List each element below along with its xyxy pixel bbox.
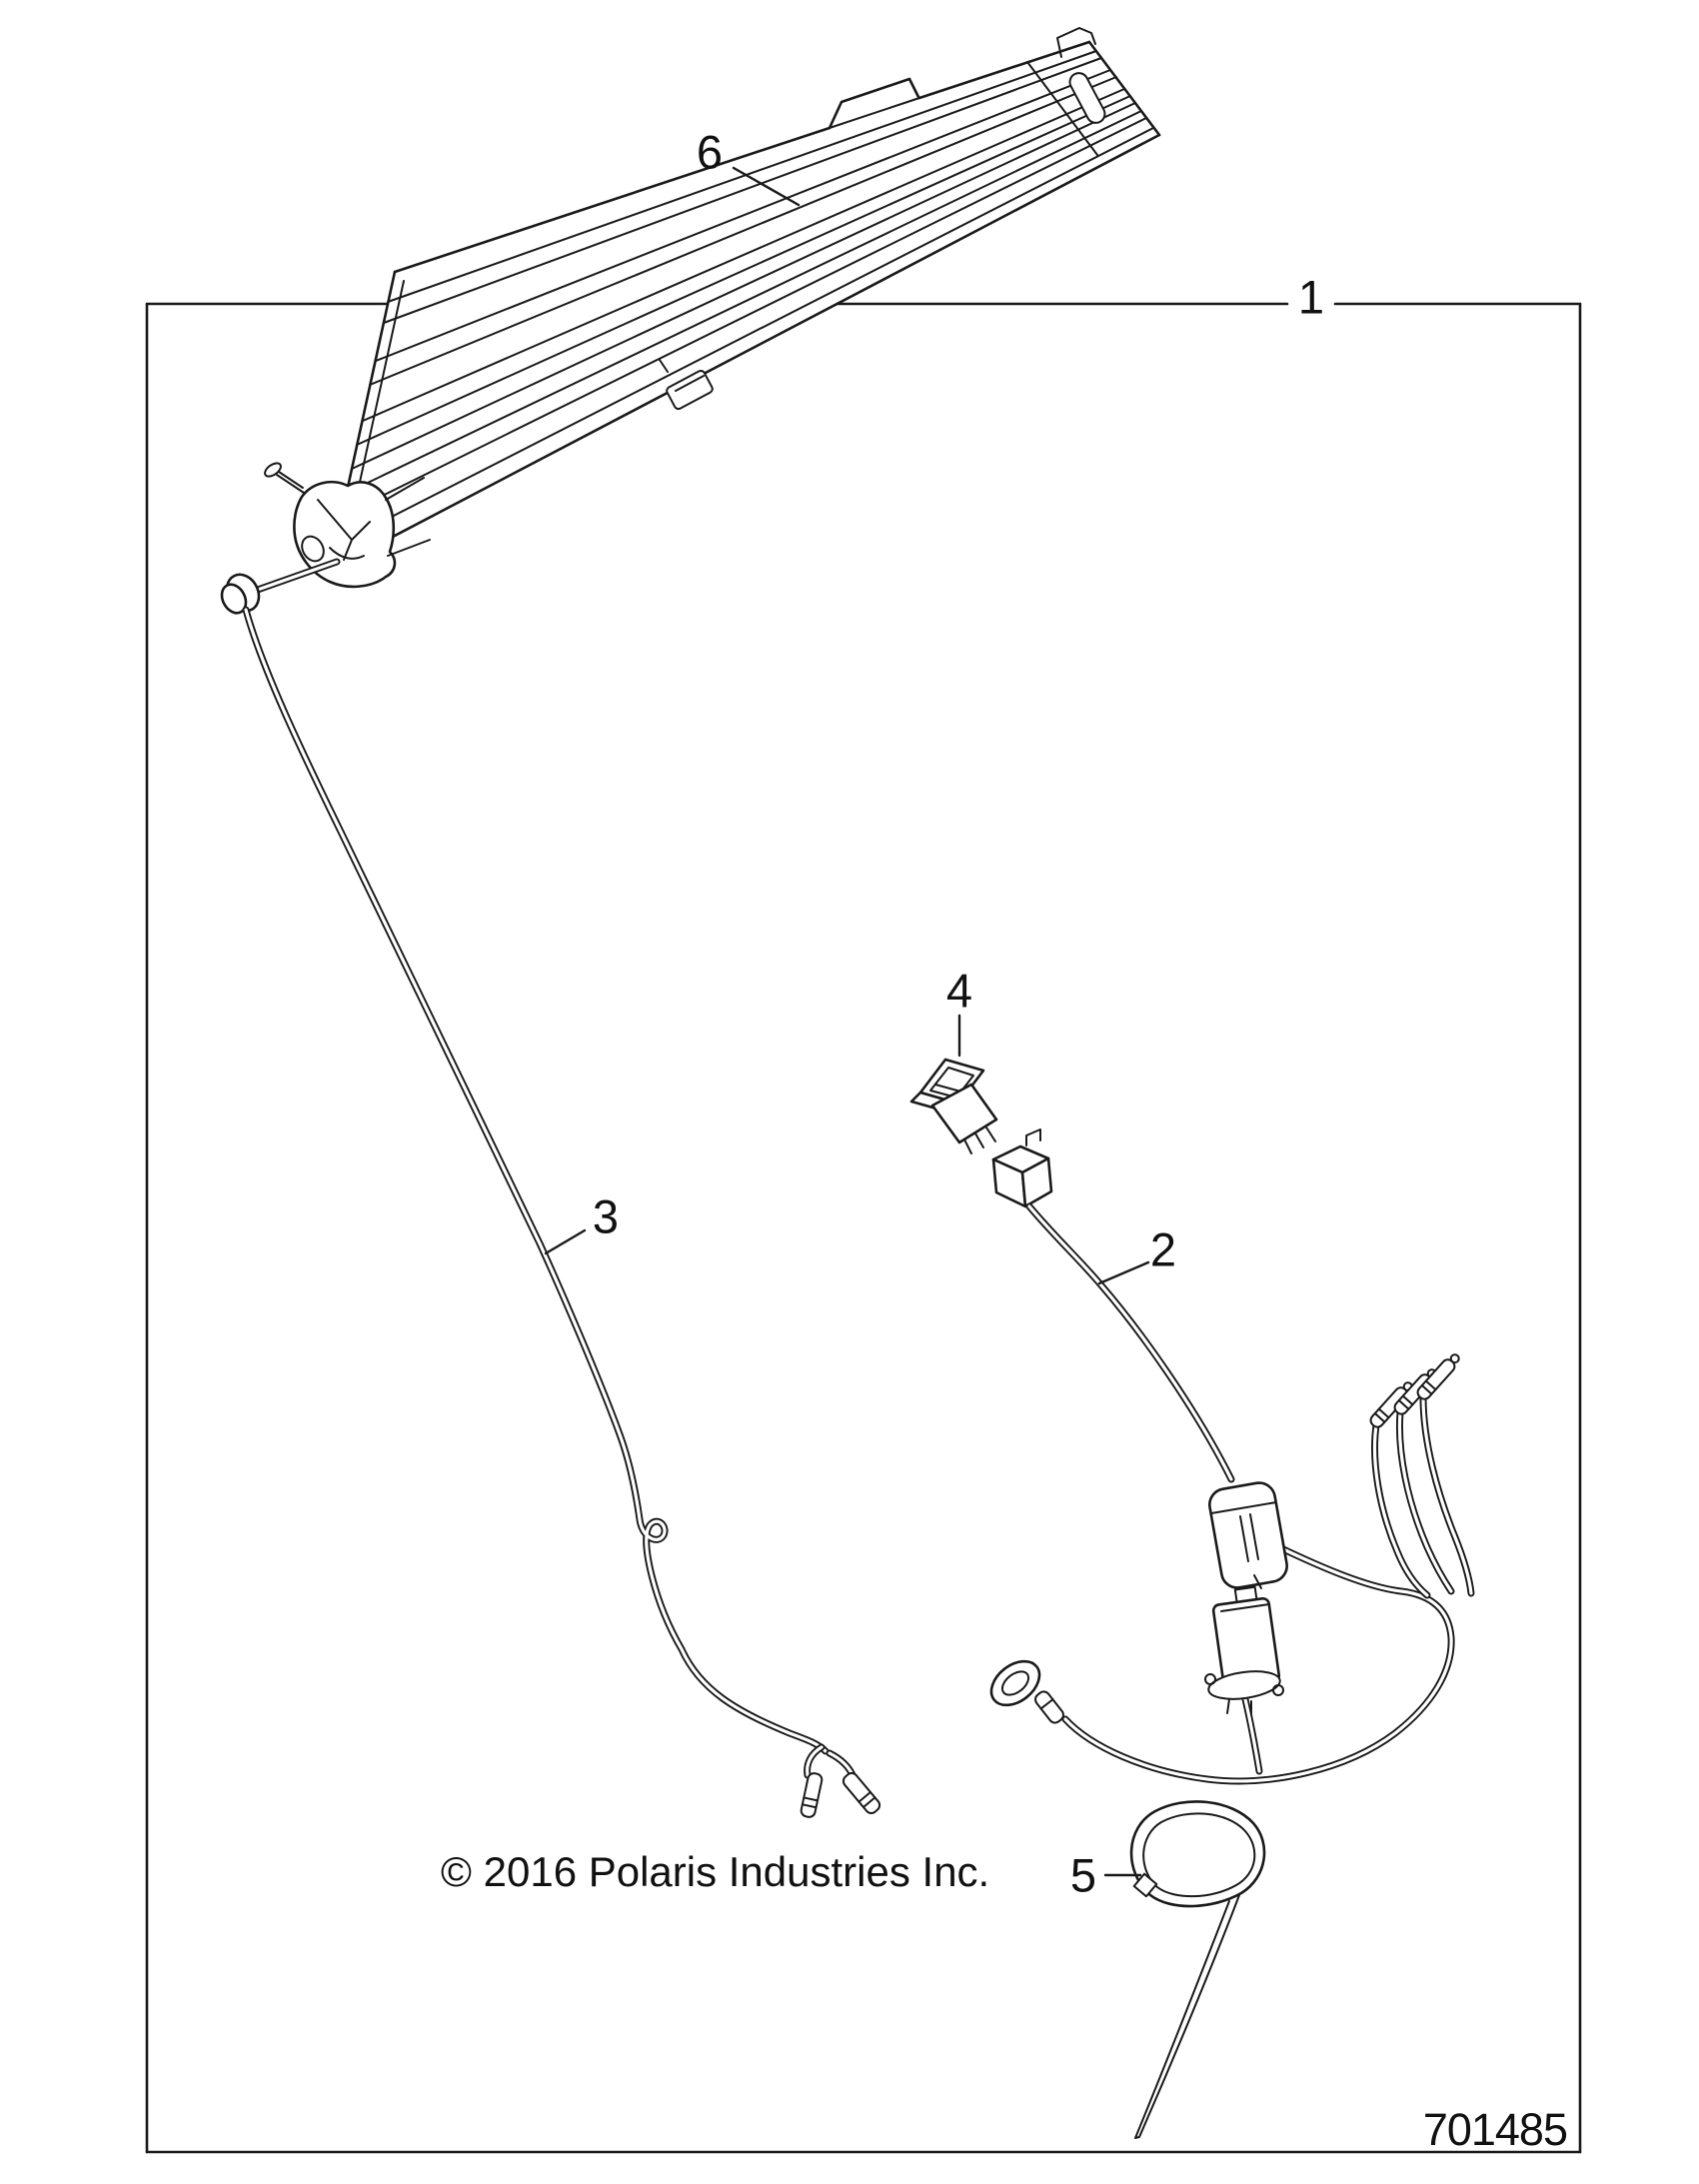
relay [1205,1587,1283,1715]
rocker-switch-drawing [911,1060,996,1153]
callout-4: 4 [946,968,972,1015]
callout-2: 2 [1150,1226,1176,1273]
callout-1: 1 [1298,274,1324,321]
switch-connector-drawing [993,1129,1051,1206]
figure-part-number: 701485 [1423,2107,1567,2152]
cable-tie-drawing [1131,1801,1264,2138]
light-bar-drawing [330,28,1159,570]
cable-tie-tail [1135,1895,1239,2138]
leader-line-3 [546,1230,585,1253]
bullet-terminal [801,1772,824,1818]
fuse-holder [1207,1480,1289,1590]
parts-diagram-page: 1 2 3 4 5 6 © 2016 Polaris Industries In… [0,0,1699,2184]
ring-terminal [983,1652,1066,1725]
leader-lines [546,168,1148,1875]
light-bar-body [330,42,1159,570]
callout-5: 5 [1070,1852,1096,1899]
copyright-text: © 2016 Polaris Industries Inc. [441,1851,989,1893]
jumper-wire-drawing [246,610,882,1818]
bullet-terminal [841,1771,881,1816]
connector-latch-tab [1026,1129,1040,1145]
leader-line-2 [1099,1262,1148,1283]
callout-6: 6 [697,129,723,176]
callout-3: 3 [593,1193,619,1240]
wiring-harness-drawing [983,1206,1471,1781]
